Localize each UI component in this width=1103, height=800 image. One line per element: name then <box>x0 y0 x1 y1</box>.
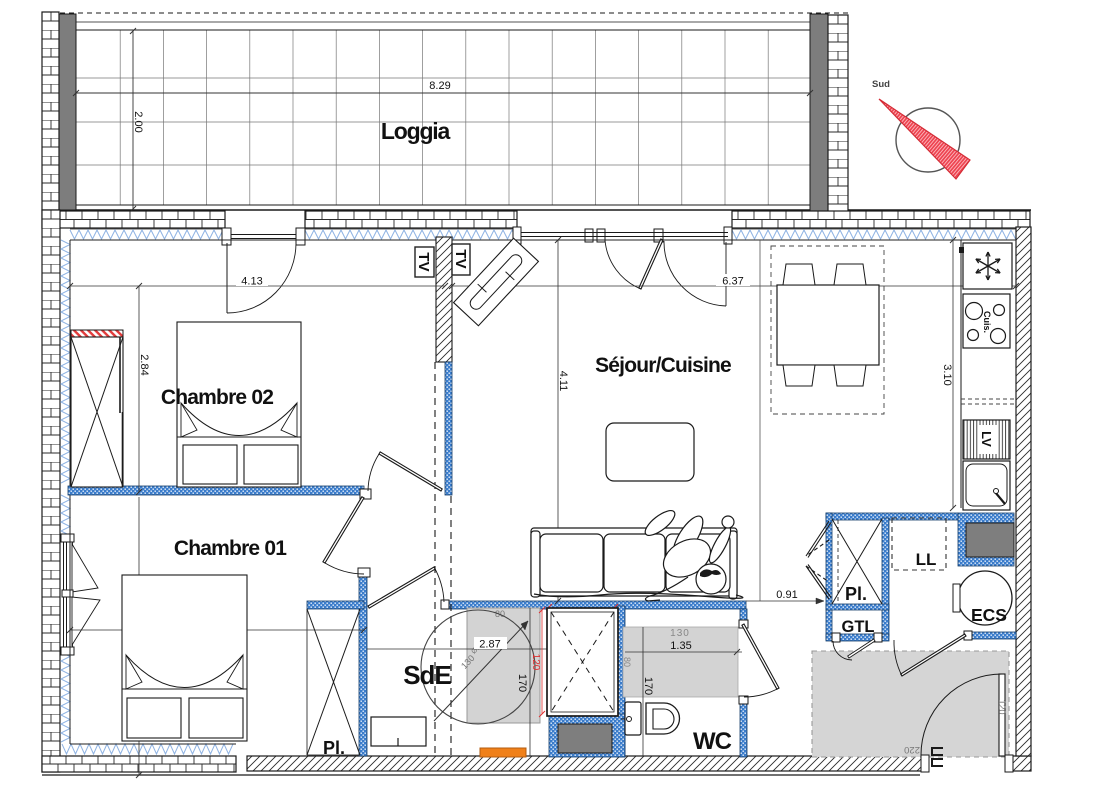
svg-text:Sud: Sud <box>872 79 890 90</box>
svg-text:170: 170 <box>642 677 654 695</box>
svg-text:LL: LL <box>916 550 937 569</box>
svg-text:130: 130 <box>670 628 690 639</box>
svg-text:2.00: 2.00 <box>132 111 144 132</box>
svg-text:6.37: 6.37 <box>722 276 743 288</box>
svg-text:80: 80 <box>622 657 632 667</box>
svg-text:8.29: 8.29 <box>429 80 450 92</box>
svg-text:LV: LV <box>979 431 994 447</box>
svg-text:4.11: 4.11 <box>557 371 569 392</box>
svg-text:Chambre 02: Chambre 02 <box>161 386 273 409</box>
svg-text:1.35: 1.35 <box>670 640 691 652</box>
svg-text:3.10: 3.10 <box>941 364 953 385</box>
svg-text:170: 170 <box>516 674 528 692</box>
svg-text:SdE: SdE <box>403 660 451 690</box>
svg-text:4.13: 4.13 <box>241 276 262 288</box>
svg-text:Chambre 01: Chambre 01 <box>174 537 287 560</box>
svg-text:0.91: 0.91 <box>776 589 797 601</box>
svg-text:2.87: 2.87 <box>479 639 500 651</box>
svg-text:Séjour/Cuisine: Séjour/Cuisine <box>595 354 731 377</box>
svg-text:Pl.: Pl. <box>845 584 867 604</box>
svg-text:GTL: GTL <box>842 618 875 636</box>
svg-text:Pl.: Pl. <box>323 738 345 758</box>
svg-text:120: 120 <box>530 654 541 671</box>
svg-text:220: 220 <box>904 744 920 755</box>
svg-text:120: 120 <box>997 699 1007 714</box>
svg-text:Loggia: Loggia <box>381 118 451 144</box>
svg-text:ECS: ECS <box>971 605 1007 625</box>
svg-text:WC: WC <box>693 728 732 755</box>
svg-text:2.84: 2.84 <box>138 354 150 375</box>
svg-text:TV: TV <box>415 252 432 271</box>
svg-text:Cuis.: Cuis. <box>982 311 992 333</box>
svg-text:TV: TV <box>452 249 469 268</box>
